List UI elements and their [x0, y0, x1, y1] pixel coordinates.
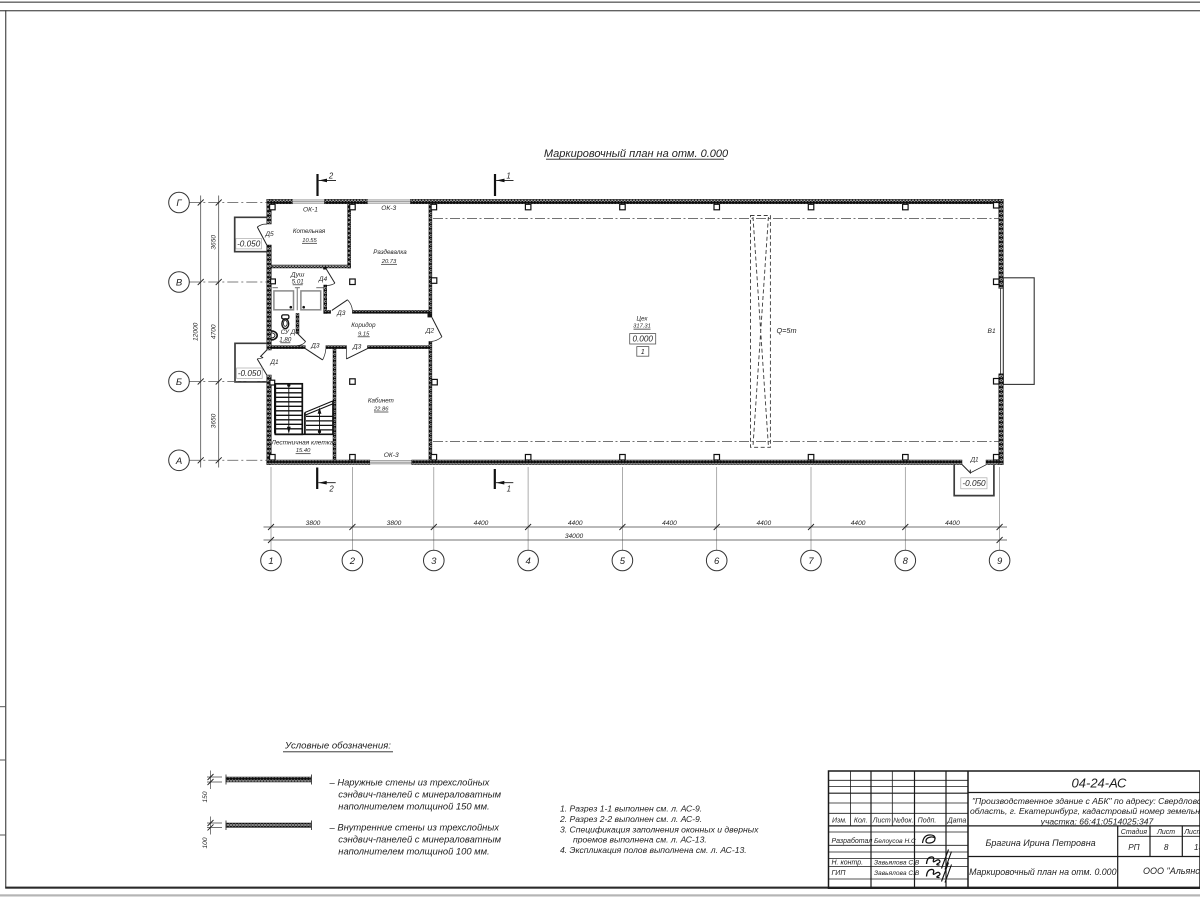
svg-text:2: 2 [349, 556, 356, 567]
svg-text:РП: РП [1128, 843, 1139, 852]
svg-text:– Внутренние стены из трехсло: – Внутренние стены из трехслойных [329, 822, 500, 833]
svg-text:Н. контр.: Н. контр. [832, 859, 864, 866]
svg-text:Разработал: Разработал [832, 837, 873, 845]
svg-text:сэндвич-панелей с минераловатн: сэндвич-панелей с минераловатным [338, 788, 501, 799]
svg-text:4400: 4400 [851, 520, 866, 527]
svg-text:Стадия: Стадия [1121, 828, 1147, 836]
svg-text:Цех: Цех [637, 315, 649, 322]
svg-text:4: 4 [525, 556, 530, 567]
svg-text:7: 7 [808, 556, 814, 567]
svg-text:100: 100 [202, 837, 209, 848]
svg-text:ОК-1: ОК-1 [303, 206, 318, 213]
svg-text:Q=5m: Q=5m [776, 326, 796, 335]
svg-text:проемов выполнена см. л. АС-13: проемов выполнена см. л. АС-13. [573, 835, 707, 845]
svg-text:3650: 3650 [211, 413, 218, 428]
svg-text:9.15: 9.15 [358, 331, 370, 337]
svg-text:0.000: 0.000 [632, 335, 653, 344]
svg-text:20.73: 20.73 [381, 259, 397, 265]
svg-text:область, г. Екатеринбург, када: область, г. Екатеринбург, кадастровый но… [970, 806, 1200, 816]
svg-text:1: 1 [641, 347, 645, 356]
svg-text:Котельная: Котельная [293, 228, 326, 235]
svg-text:№док.: №док. [893, 816, 914, 824]
svg-text:сэндвич-панелей с минераловатн: сэндвич-панелей с минераловатным [338, 834, 501, 845]
svg-text:2: 2 [328, 172, 334, 181]
svg-text:Кабинет: Кабинет [368, 398, 394, 405]
svg-text:ОК-3: ОК-3 [381, 205, 396, 212]
svg-text:4400: 4400 [662, 520, 677, 527]
svg-text:1: 1 [506, 172, 510, 181]
svg-text:10.55: 10.55 [302, 238, 317, 244]
svg-text:12000: 12000 [193, 322, 200, 341]
svg-text:Д5: Д5 [264, 231, 274, 238]
svg-text:ООО "Альянс": ООО "Альянс" [1143, 866, 1200, 876]
svg-text:Маркировочный план на отм. 0.0: Маркировочный план на отм. 0.000 [969, 867, 1116, 877]
svg-text:13: 13 [1194, 843, 1200, 852]
svg-text:1: 1 [268, 556, 273, 567]
svg-text:Г: Г [176, 198, 182, 209]
svg-text:5: 5 [620, 556, 626, 567]
svg-text:-0.050: -0.050 [962, 479, 986, 488]
svg-text:-0.050: -0.050 [238, 369, 262, 378]
svg-text:наполнителем толщиной 150 мм.: наполнителем толщиной 150 мм. [338, 800, 489, 811]
svg-text:В1: В1 [988, 328, 996, 335]
svg-text:Б: Б [176, 377, 182, 388]
svg-text:4400: 4400 [568, 520, 583, 527]
svg-text:Условные обозначения:: Условные обозначения: [284, 741, 391, 752]
svg-text:1. Разрез 1-1 выполнен см. л.: 1. Разрез 1-1 выполнен см. л. АС-9. [560, 804, 702, 814]
svg-text:Коридор: Коридор [351, 322, 376, 329]
svg-text:4. Экспликация полов выполнена: 4. Экспликация полов выполнена см. л. АС… [560, 845, 747, 855]
svg-text:Д4: Д4 [318, 276, 328, 283]
svg-text:наполнителем толщиной 100 мм.: наполнителем толщиной 100 мм. [338, 846, 489, 857]
svg-text:1: 1 [507, 485, 511, 494]
svg-text:Подп.: Подп. [918, 816, 937, 824]
svg-text:8: 8 [1164, 843, 1169, 852]
svg-text:Дата: Дата [947, 817, 967, 824]
svg-text:5.01: 5.01 [292, 278, 304, 285]
svg-text:Белоусов Н.С: Белоусов Н.С [874, 838, 916, 845]
svg-text:СУ Д4: СУ Д4 [281, 329, 300, 336]
svg-text:4700: 4700 [211, 324, 218, 339]
svg-text:6: 6 [714, 556, 720, 567]
svg-text:34000: 34000 [565, 533, 584, 540]
svg-text:8: 8 [903, 556, 909, 567]
svg-text:9: 9 [997, 556, 1003, 567]
svg-text:Д1: Д1 [269, 359, 279, 366]
svg-text:ГИП: ГИП [832, 870, 847, 877]
svg-text:3800: 3800 [387, 520, 402, 527]
svg-text:Изм.: Изм. [832, 817, 847, 824]
svg-text:"Производственное здание с АБК: "Производственное здание с АБК" по адрес… [972, 796, 1200, 806]
svg-text:-0.050: -0.050 [237, 239, 261, 248]
svg-text:Кол.: Кол. [854, 817, 868, 824]
svg-text:317.31: 317.31 [633, 324, 651, 330]
svg-text:– Наружные стены из трехслойн: – Наружные стены из трехслойных [329, 776, 490, 787]
svg-text:4400: 4400 [756, 520, 771, 527]
svg-text:А: А [175, 456, 182, 467]
svg-text:3. Спецификация заполнения око: 3. Спецификация заполнения оконных и две… [560, 824, 759, 834]
svg-text:2. Разрез 2-2 выполнен см. л.: 2. Разрез 2-2 выполнен см. л. АС-9. [559, 814, 702, 824]
svg-text:3800: 3800 [306, 520, 321, 527]
svg-text:3650: 3650 [211, 235, 218, 250]
svg-text:04-24-АС: 04-24-АС [1072, 775, 1128, 790]
svg-text:Завьялова С.В: Завьялова С.В [874, 859, 920, 866]
svg-text:22.86: 22.86 [373, 407, 389, 413]
svg-text:Раздевалка: Раздевалка [373, 249, 407, 256]
svg-text:Д3: Д3 [352, 344, 362, 351]
svg-text:Лист: Лист [1156, 829, 1175, 836]
svg-text:Листов: Листов [1183, 829, 1200, 836]
svg-text:Лист: Лист [872, 817, 891, 824]
svg-text:3: 3 [431, 556, 437, 567]
svg-text:Завьялова С.В: Завьялова С.В [874, 870, 920, 877]
svg-text:Брагина Ирина Петровна: Брагина Ирина Петровна [986, 838, 1096, 848]
svg-text:участка: 66:41:0514025:347: участка: 66:41:0514025:347 [1040, 816, 1155, 826]
svg-text:15.40: 15.40 [296, 448, 311, 454]
svg-text:Лестничная клетка: Лестничная клетка [270, 439, 333, 446]
svg-text:2: 2 [328, 485, 334, 494]
svg-text:4400: 4400 [945, 520, 960, 527]
svg-text:Д1: Д1 [970, 457, 979, 464]
svg-text:Маркировочный план на отм. 0.0: Маркировочный план на отм. 0.000 [544, 148, 729, 160]
svg-text:Д3: Д3 [310, 342, 320, 349]
svg-text:В: В [176, 278, 183, 289]
svg-text:ОК-3: ОК-3 [384, 452, 399, 459]
svg-text:Д2: Д2 [425, 328, 435, 335]
svg-text:4400: 4400 [474, 520, 489, 527]
svg-text:1.80: 1.80 [279, 336, 292, 343]
svg-text:Д3: Д3 [336, 310, 346, 317]
svg-text:150: 150 [202, 791, 209, 802]
